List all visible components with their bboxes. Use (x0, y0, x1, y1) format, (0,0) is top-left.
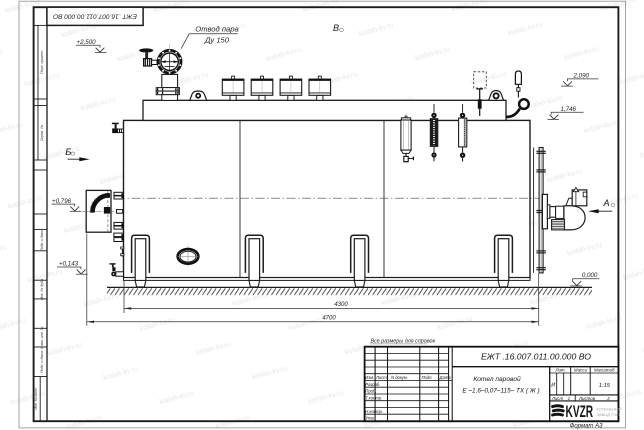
svg-text:Разраб.: Разраб. (365, 382, 380, 387)
svg-text:Масса: Масса (574, 368, 588, 373)
svg-text:Б: Б (65, 147, 71, 158)
svg-text:Изм.: Изм. (365, 375, 374, 380)
svg-text:Котел паровой: Котел паровой (473, 375, 521, 383)
svg-text:Формат А3: Формат А3 (570, 424, 603, 430)
svg-text:Отвод пара: Отвод пара (195, 25, 238, 34)
svg-text:4700: 4700 (322, 316, 336, 322)
svg-text:ЕЖТ .16.007.011.00.000 ВО: ЕЖТ .16.007.011.00.000 ВО (481, 353, 591, 362)
svg-text:Дата: Дата (439, 375, 452, 380)
svg-text:Проб.: Проб. (365, 389, 376, 394)
svg-text:1,746: 1,746 (561, 106, 577, 113)
svg-text:В: В (333, 23, 339, 33)
svg-text:Перв. примен.: Перв. примен. (40, 50, 44, 74)
svg-text:+2,500: +2,500 (77, 39, 97, 46)
svg-text:Листов: Листов (578, 396, 596, 401)
svg-text:0,000: 0,000 (582, 272, 598, 279)
svg-text:Инв. № подл: Инв. № подл (34, 388, 38, 409)
svg-text:+0,143: +0,143 (59, 261, 79, 268)
svg-text:И: И (551, 383, 555, 389)
svg-text:4300: 4300 (334, 302, 348, 308)
svg-text:Лист: Лист (551, 396, 564, 401)
svg-text:Взам. инв. №: Взам. инв. № (40, 326, 44, 348)
svg-text:Инв. № дубл: Инв. № дубл (40, 279, 44, 300)
svg-text:Е –1,6–0,07–115– ТХ ( Ж ): Е –1,6–0,07–115– ТХ ( Ж ) (462, 387, 539, 394)
svg-text:КОТЕЛЬНЫЙ: КОТЕЛЬНЫЙ (596, 406, 621, 411)
svg-text:ЕЖТ .16.007.011.00.000 ВО: ЕЖТ .16.007.011.00.000 ВО (53, 13, 137, 20)
svg-text:Утв.: Утв. (365, 416, 375, 421)
svg-text:Т.контр.: Т.контр. (365, 395, 382, 400)
svg-text:Справ. №: Справ. № (40, 125, 44, 141)
svg-text:2,090: 2,090 (573, 72, 590, 79)
svg-text:1:15: 1:15 (599, 383, 611, 389)
svg-text:Ду 150: Ду 150 (204, 35, 230, 44)
svg-text:Подп.: Подп. (422, 375, 433, 380)
svg-text:Подп. и дата: Подп. и дата (40, 351, 44, 374)
svg-text:KVZR: KVZR (566, 402, 594, 421)
svg-text:Лист: Лист (375, 375, 387, 380)
svg-text:ЗАВОД РЭП: ЗАВОД РЭП (597, 412, 620, 417)
svg-text:Н.контр.: Н.контр. (365, 409, 383, 414)
svg-text:А: А (603, 198, 610, 208)
svg-text:Масштаб: Масштаб (594, 368, 615, 373)
svg-text:Лит.: Лит. (554, 368, 565, 373)
svg-text:N докум.: N докум. (391, 375, 408, 380)
svg-text:2: 2 (606, 396, 610, 401)
svg-text:Подп. и дата: Подп. и дата (40, 229, 44, 252)
